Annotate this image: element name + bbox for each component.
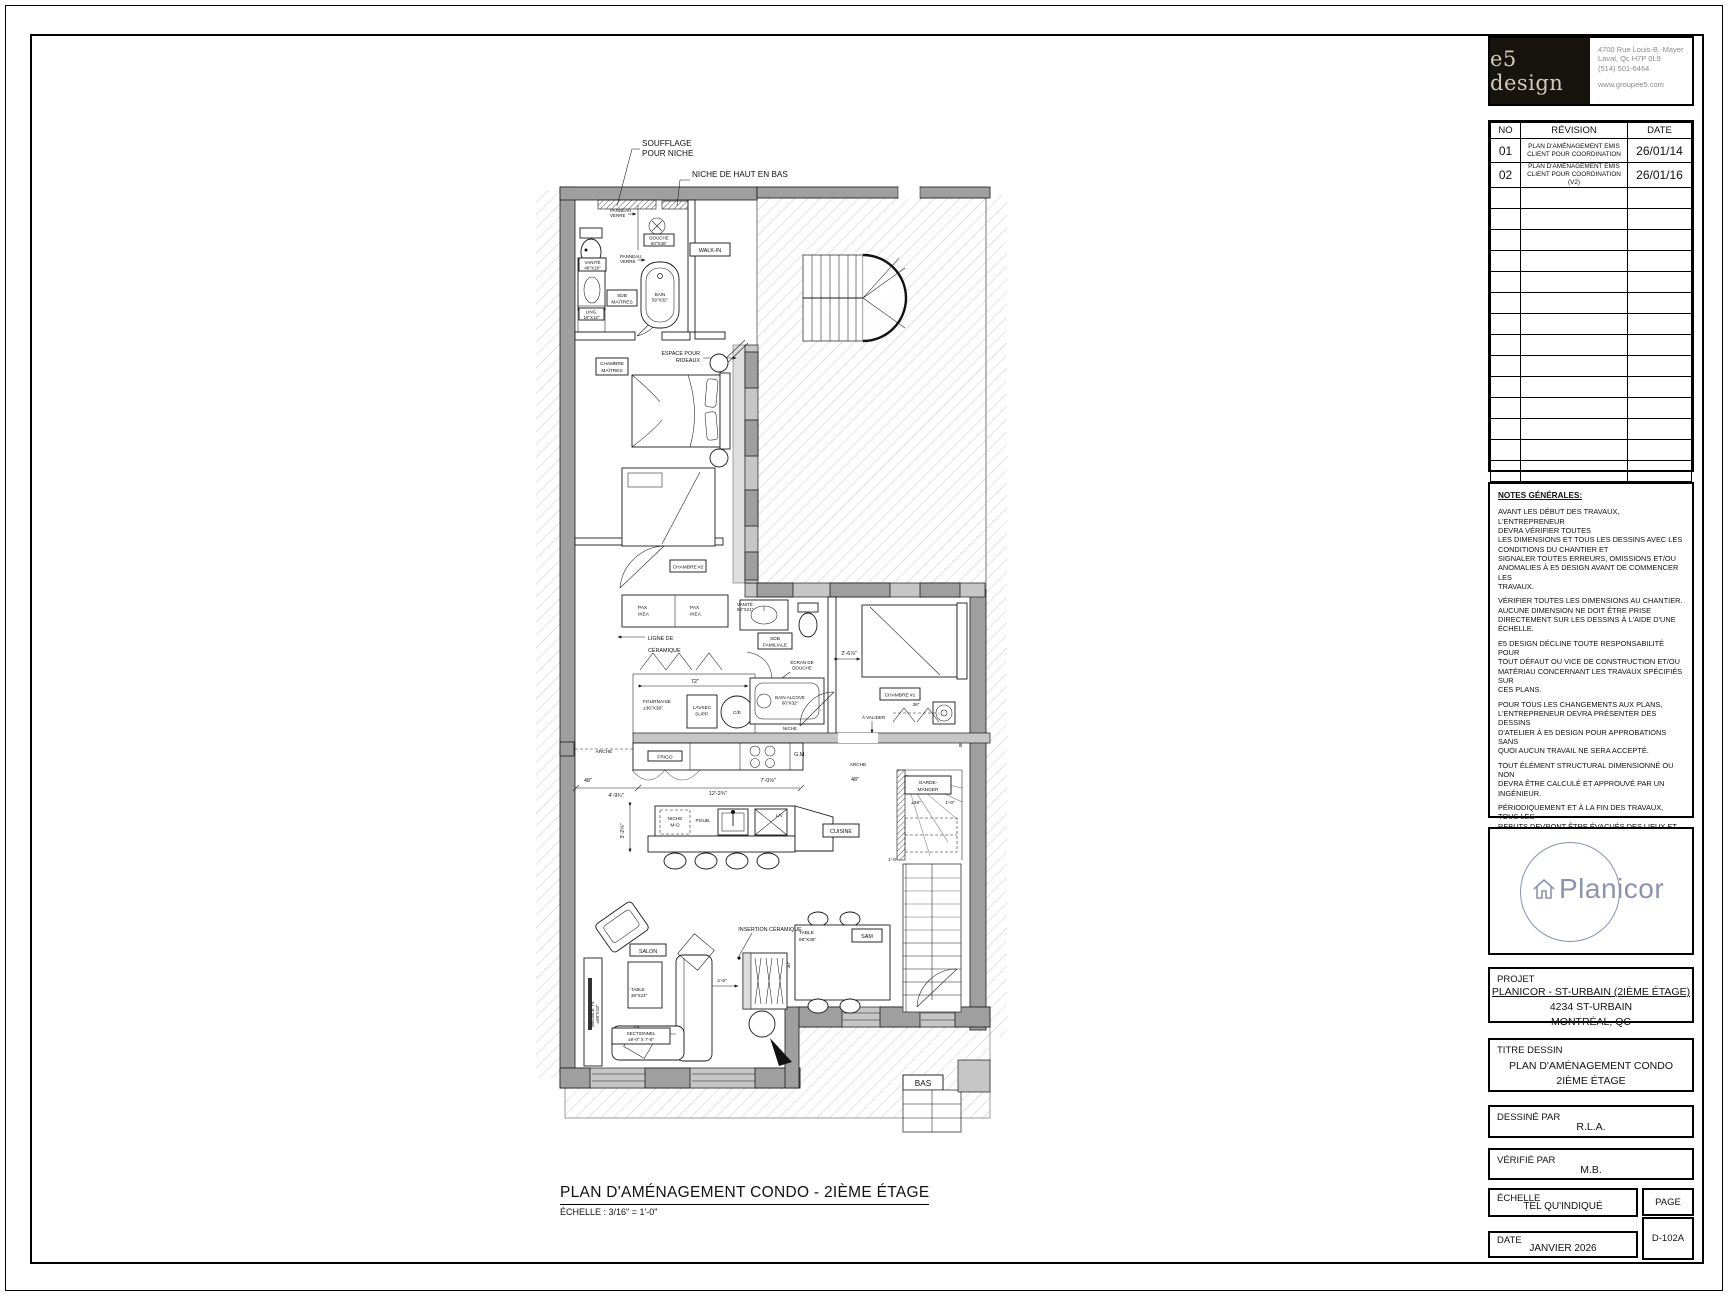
right-wall <box>970 590 986 1030</box>
master-bathroom: VANITÉ 48"X19" LING. 16"X12" PANNEAU VER… <box>575 200 695 340</box>
hatch-right-strip <box>986 195 1007 1037</box>
bifold-doors <box>640 653 722 670</box>
label-niche-haut-bas: NICHE DE HAUT EN BAS <box>692 170 788 179</box>
label-lv: L/V <box>776 813 783 818</box>
nightstand <box>710 354 728 372</box>
svg-text:CHAMBRE #1: CHAMBRE #1 <box>885 693 916 699</box>
label-niche: NICHE <box>783 726 797 731</box>
top-wall-door-gap <box>898 185 920 199</box>
revision-row: 01 PLAN D'AMÉNAGEMENT EMISCLIENT POUR CO… <box>1491 139 1692 163</box>
svg-text:48"X19": 48"X19" <box>584 266 601 271</box>
planicor-logo-text: Planicor <box>1559 873 1664 905</box>
pantry-wall <box>897 770 905 860</box>
project-block: PROJET PLANICOR - ST-URBAIN (2IÈME ÉTAGE… <box>1488 967 1694 1023</box>
svg-text:CHAMBRE #2: CHAMBRE #2 <box>673 565 704 571</box>
general-notes-block: NOTES GÉNÉRALES: AVANT LES DÉBUT DES TRA… <box>1488 482 1694 818</box>
svg-text:SDB: SDB <box>617 293 627 299</box>
svg-text:36"X24": 36"X24" <box>631 993 648 998</box>
pantry: GARDE- MANGER ±36" 1'-0" <box>897 770 962 860</box>
label-insertion-ceramique: INSERTION CÉRAMIQUE <box>738 926 802 933</box>
revision-empty-row <box>1491 398 1692 419</box>
stair-wall-block <box>958 1060 990 1092</box>
house-icon <box>1532 877 1556 901</box>
top-wall <box>560 187 757 200</box>
staircase-down: 1'-0" <box>888 857 961 1012</box>
dim-2-6b: 2'-6" <box>717 978 727 984</box>
niche-hatch-2 <box>662 201 688 209</box>
svg-text:LAVSEC: LAVSEC <box>693 705 712 711</box>
note-paragraph: E5 DESIGN DÉCLINE TOUTE RESPONSABILITÉ P… <box>1498 639 1684 695</box>
fridge-door-swing <box>632 770 700 780</box>
note-paragraph: TOUT ÉLÉMENT STRUCTURAL DIMENSIONNÉ OU N… <box>1498 761 1684 798</box>
svg-text:WALK-IN: WALK-IN <box>699 248 721 254</box>
svg-text:MAÎTRES: MAÎTRES <box>611 299 632 306</box>
svg-text:SUPP.: SUPP. <box>695 712 709 718</box>
svg-text:FAMILIALE: FAMILIALE <box>763 643 787 649</box>
stool <box>757 853 779 869</box>
svg-text:SDB: SDB <box>770 636 780 642</box>
stool <box>695 853 717 869</box>
svg-text:IKEA: IKEA <box>638 612 650 618</box>
living-room: SALON TABLE 36"X24" SECTIONNEL ±9'-0" X … <box>584 900 714 1066</box>
svg-text:SAM: SAM <box>861 934 873 940</box>
date-block: DATE JANVIER 2026 <box>1488 1231 1638 1258</box>
kitchen-island: NICHE M-O POUB. L/V 3'-2⅝" CUISINE <box>620 806 859 869</box>
label-fournaise: FOURNAISE <box>643 699 671 705</box>
svg-text:PAX: PAX <box>638 605 648 611</box>
svg-text:M-O: M-O <box>670 823 680 829</box>
dim-7-0: 7'-0⅝" <box>760 778 775 784</box>
revision-empty-row <box>1491 377 1692 398</box>
svg-text:59"X32": 59"X32" <box>652 298 669 303</box>
e5-design-logo: e5 design <box>1490 38 1590 104</box>
notes-title: NOTES GÉNÉRALES: <box>1498 491 1684 501</box>
island-counter <box>648 836 795 852</box>
rev-col-no: NO <box>1491 123 1521 139</box>
dim-3-2: 3'-2⅝" <box>620 823 626 838</box>
round-chair <box>749 1011 775 1037</box>
curtain-wall <box>733 345 745 583</box>
svg-text:SALON: SALON <box>639 949 657 955</box>
rev-col-revision: RÉVISION <box>1521 123 1628 139</box>
firm-address: 4700 Rue Louis-B.-Mayer Laval, Qc H7P 0L… <box>1590 38 1692 104</box>
dim-72: 72" <box>691 679 699 685</box>
floor-plan: SOUFFLAGE POUR NICHE NICHE DE HAUT EN BA… <box>535 132 1010 1144</box>
coffee-table <box>628 962 662 1008</box>
svg-text:DOUCHE: DOUCHE <box>649 236 669 241</box>
chair <box>840 999 860 1013</box>
headboard <box>720 373 730 449</box>
page-label-box: PAGE <box>1642 1188 1694 1216</box>
svg-text:PAX: PAX <box>690 605 700 611</box>
revision-empty-row <box>1491 188 1692 209</box>
svg-text:CHAMBRE: CHAMBRE <box>600 361 624 367</box>
stool <box>726 853 748 869</box>
page-number: D-102A <box>1652 1233 1684 1244</box>
dim-4-9: 4'-9¾" <box>608 793 623 799</box>
spiral-staircase <box>803 255 906 341</box>
label-espace-rideaux: ESPACE POUR <box>661 351 700 357</box>
svg-text:±60"X18": ±60"X18" <box>595 1004 600 1023</box>
label-gm: G.M. <box>794 752 806 758</box>
bath1-wall <box>828 597 836 735</box>
label-ligne-ceramique: LIGNE DE <box>648 636 674 642</box>
rev-col-date: DATE <box>1628 123 1692 139</box>
project-name: PLANICOR - ST-URBAIN (2IÈME ÉTAGE) <box>1490 985 1692 1000</box>
revision-empty-row <box>1491 419 1692 440</box>
svg-text:BAIN ALCOVE: BAIN ALCOVE <box>775 695 805 700</box>
dim-12-2: 12'-2¾" <box>709 791 727 797</box>
scale-block: ÉCHELLE TEL QU'INDIQUÉ <box>1488 1188 1638 1217</box>
svg-text:CUISINE: CUISINE <box>830 829 852 835</box>
dim-1-0a: 1'-0" <box>945 800 955 806</box>
label-arche-1: ARCHE <box>596 749 613 755</box>
laundry-room: 72" FOURNAISE ±36"X36" LAVSEC SUPP. C/E <box>633 674 755 734</box>
project-label: PROJET <box>1490 969 1692 985</box>
svg-text:BAS: BAS <box>915 1079 932 1088</box>
svg-text:NICHE: NICHE <box>668 816 683 822</box>
top-wall-right <box>757 187 990 198</box>
svg-text:60"X36": 60"X36" <box>651 241 668 246</box>
headboard-1 <box>957 603 967 679</box>
svg-text:POUR NICHE: POUR NICHE <box>642 149 694 158</box>
closet-bifold <box>893 708 939 722</box>
revision-row: 02 PLAN D'AMÉNAGEMENT EMISCLIENT POUR CO… <box>1491 163 1692 188</box>
revision-empty-row <box>1491 293 1692 314</box>
plan-title: PLAN D'AMÉNAGEMENT CONDO - 2IÈME ÉTAGE <box>560 1184 929 1205</box>
svg-text:66"X36": 66"X36" <box>799 937 817 943</box>
svg-text:VANITÉ: VANITÉ <box>585 259 601 265</box>
revision-empty-row <box>1491 461 1692 482</box>
svg-text:DOUCHE: DOUCHE <box>792 666 812 671</box>
svg-text:FRIGO: FRIGO <box>657 755 672 761</box>
drawing-title-label: TITRE DESSIN <box>1490 1040 1692 1056</box>
firm-logo-block: e5 design 4700 Rue Louis-B.-Mayer Laval,… <box>1488 36 1694 106</box>
svg-text:C/E: C/E <box>733 710 741 716</box>
washer <box>933 702 955 724</box>
dimension-row: 48" 7'-0⅝" 4'-9¾" 12'-2¾" 48" <box>573 777 859 799</box>
client-logo-block: Planicor <box>1488 827 1694 955</box>
drawing-title-block: TITRE DESSIN PLAN D'AMÉNAGEMENT CONDO 2I… <box>1488 1038 1694 1092</box>
revision-empty-row <box>1491 251 1692 272</box>
revision-empty-row <box>1491 272 1692 293</box>
svg-text:MAÎTRES: MAÎTRES <box>601 367 622 374</box>
kitchen-north-wall <box>633 733 990 743</box>
note-paragraph: VÉRIFIER TOUTES LES DIMENSIONS AU CHANTI… <box>1498 596 1684 633</box>
nightstand <box>710 449 728 467</box>
svg-text:16"X12": 16"X12" <box>583 315 600 320</box>
bed-2 <box>622 468 715 546</box>
svg-text:RIDEAUX: RIDEAUX <box>676 358 700 364</box>
note-paragraph: POUR TOUS LES CHANGEMENTS AUX PLANS, L'E… <box>1498 700 1684 756</box>
revision-empty-row <box>1491 440 1692 461</box>
project-address: 4234 ST-URBAIN <box>1490 1000 1692 1015</box>
bed-1 <box>862 605 957 677</box>
revision-empty-row <box>1491 335 1692 356</box>
page-label: PAGE <box>1655 1197 1681 1208</box>
dim-36: 36" <box>912 702 919 708</box>
lavsec <box>687 695 717 728</box>
svg-text:VERRE: VERRE <box>620 259 636 264</box>
label-arche-2: ARCHE <box>850 762 867 768</box>
bedroom2-door <box>620 546 664 588</box>
left-wall <box>560 187 575 1075</box>
revision-empty-row <box>1491 314 1692 335</box>
drawing-title-line2: 2IÈME ÉTAGE <box>1490 1074 1692 1089</box>
svg-text:TABLE: TABLE <box>631 987 645 992</box>
dim-48a: 48" <box>584 778 592 784</box>
toilet-tank <box>580 228 602 238</box>
revision-table-block: NO RÉVISION DATE 01 PLAN D'AMÉNAGEMENT E… <box>1488 120 1694 472</box>
revision-empty-row <box>1491 230 1692 251</box>
svg-text:BAIN: BAIN <box>655 292 666 297</box>
bedroom-2: CHAMBRE #2 PAX IKEA PAX IKEA <box>620 468 728 627</box>
svg-text:±9'-0" X 7'-6": ±9'-0" X 7'-6" <box>628 1037 654 1042</box>
svg-text:54"X21": 54"X21" <box>737 607 754 612</box>
drawn-by-block: DESSINÉ PAR R.L.A. <box>1488 1105 1694 1138</box>
dim-pm36: ±36" <box>911 800 921 806</box>
page-number-box: D-102A <box>1642 1217 1694 1260</box>
revision-empty-row <box>1491 356 1692 377</box>
checked-by-block: VÉRIFIÉ PAR M.B. <box>1488 1148 1694 1180</box>
plan-scale-note: ÉCHELLE : 3/16" = 1'-0" <box>560 1207 657 1217</box>
hallway: LIGNE DE CÉRAMIQUE <box>618 636 722 670</box>
svg-text:VERRE: VERRE <box>610 213 626 218</box>
chair <box>808 999 828 1013</box>
family-bathroom: VANITÉ 54"X21" SDB FAMILIALE ÉCRAN DE DO… <box>737 597 836 735</box>
project-city: MONTRÉAL, QC <box>1490 1015 1692 1030</box>
svg-text:60"X32": 60"X32" <box>782 701 799 706</box>
note-paragraph: AVANT LES DÉBUT DES TRAVAUX, L'ENTREPREN… <box>1498 507 1684 591</box>
drawing-title-line1: PLAN D'AMÉNAGEMENT CONDO <box>1490 1059 1692 1074</box>
hatch-left-strip <box>536 190 560 1078</box>
svg-text:±36"X36": ±36"X36" <box>643 706 663 712</box>
revision-table: NO RÉVISION DATE 01 PLAN D'AMÉNAGEMENT E… <box>1490 122 1692 482</box>
revision-empty-row <box>1491 209 1692 230</box>
revision-empty-rows <box>1491 188 1692 482</box>
label-soufflage: SOUFFLAGE <box>642 139 692 148</box>
svg-text:GARDE-: GARDE- <box>919 780 938 786</box>
stool <box>664 853 686 869</box>
label-a-valider: À VALIDER <box>862 714 886 720</box>
dim-1-0b: 1'-0" <box>888 857 898 863</box>
step-wall <box>785 1007 799 1088</box>
dim-48b: 48" <box>851 777 859 783</box>
bedroom-1: 2'-6⅞" CHAMBRE #1 À VALIDER 36" ±30" ±55… <box>800 603 967 748</box>
svg-text:MANGER: MANGER <box>917 787 939 793</box>
chair <box>808 912 828 926</box>
dim-2-6-7-8: 2'-6⅞" <box>841 651 856 657</box>
label-poub: POUB. <box>696 818 711 824</box>
svg-text:SECTIONNEL: SECTIONNEL <box>627 1031 656 1036</box>
svg-text:IKEA: IKEA <box>690 612 702 618</box>
svg-text:LING.: LING. <box>586 310 598 315</box>
bath-walkin-wall <box>688 200 695 332</box>
label-ecran-douche: ÉCRAN DE <box>790 659 813 665</box>
chair <box>840 912 860 926</box>
toilet2-tank <box>798 603 818 612</box>
toilet-2 <box>799 613 817 637</box>
